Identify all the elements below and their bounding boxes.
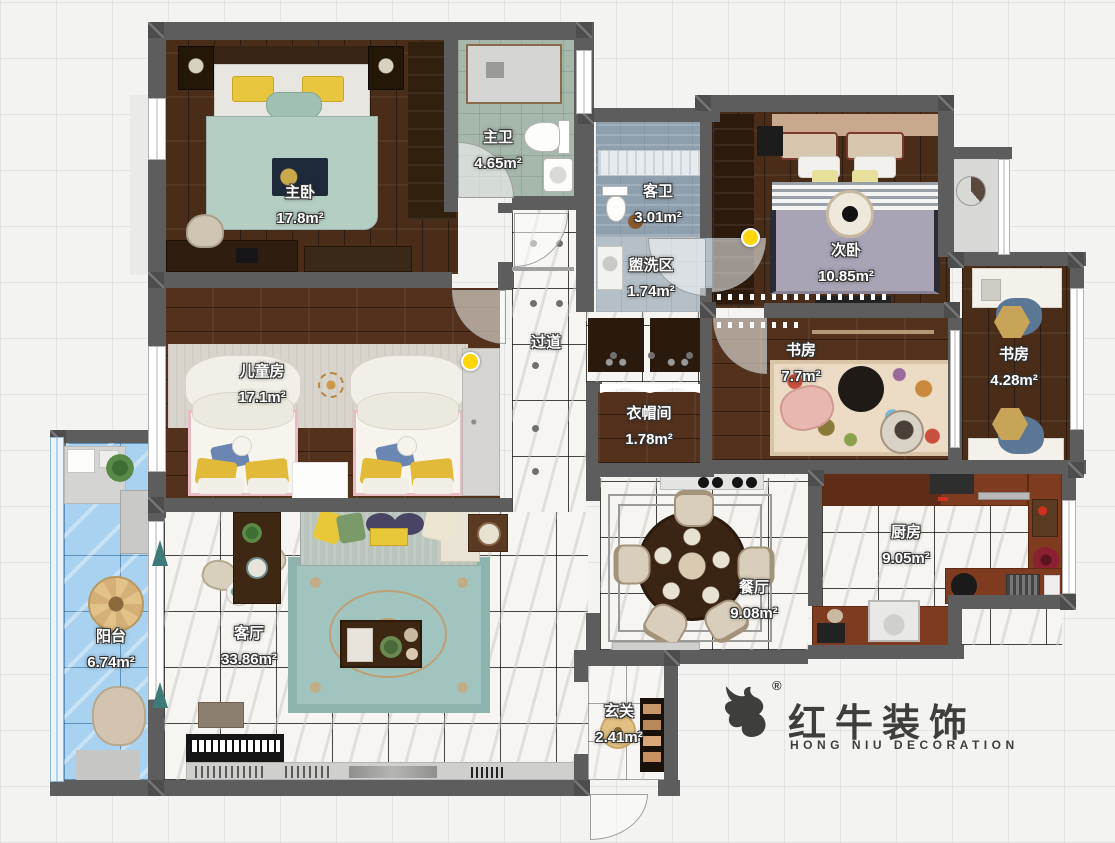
room-name: 主卫 xyxy=(474,130,522,145)
wall xyxy=(576,208,594,312)
wall xyxy=(948,595,1076,609)
window xyxy=(998,159,1010,255)
shoes xyxy=(643,704,661,714)
cushion-cream xyxy=(421,509,456,543)
spotlight xyxy=(686,352,693,359)
wall-joint xyxy=(664,650,680,666)
wall-joint xyxy=(700,302,716,318)
wall xyxy=(764,303,960,318)
wall xyxy=(808,474,822,606)
bunny-doll xyxy=(232,436,252,456)
room-name: 玄关 xyxy=(595,704,643,719)
speaker-grill xyxy=(285,766,329,778)
plate xyxy=(246,557,268,579)
kids-bed xyxy=(349,352,467,498)
monitor xyxy=(981,279,1001,301)
room-name: 主卧 xyxy=(276,185,324,200)
room-label-master-bath: 主卫 4.65m² xyxy=(474,130,522,171)
room-name: 次卧 xyxy=(818,243,874,258)
plate xyxy=(404,628,418,642)
wall xyxy=(444,38,458,196)
bead-curtain xyxy=(706,294,888,300)
bar-stool xyxy=(698,477,709,488)
room-name: 厨房 xyxy=(882,525,930,540)
wall xyxy=(50,780,582,796)
wall xyxy=(712,460,1086,474)
piano xyxy=(186,734,284,764)
room-area: 17.1m² xyxy=(238,390,286,405)
shoe-cabinet xyxy=(640,698,664,772)
bathtub xyxy=(598,150,710,176)
floor-mat xyxy=(292,462,348,500)
wall xyxy=(938,157,954,257)
desk-chair xyxy=(186,214,224,248)
pillow-white xyxy=(198,478,244,494)
spotlight xyxy=(532,362,539,369)
dining-chair xyxy=(674,490,714,527)
parasol-table xyxy=(88,576,144,632)
room-area: 4.28m² xyxy=(990,373,1038,388)
room-label-study-1: 书房 7.7m² xyxy=(781,343,820,384)
bolster-teal xyxy=(266,92,322,118)
door-entry xyxy=(590,794,648,840)
dresser xyxy=(304,246,412,272)
vent-strip xyxy=(978,492,1030,500)
coffee-table xyxy=(340,620,422,668)
room-name: 阳台 xyxy=(87,629,135,644)
room-name: 客卫 xyxy=(634,184,682,199)
toilet xyxy=(602,186,628,196)
wall xyxy=(664,650,808,664)
nightstand xyxy=(178,46,214,90)
desk xyxy=(166,240,298,272)
wall-joint xyxy=(944,302,960,318)
room-name: 儿童房 xyxy=(238,364,286,379)
wall xyxy=(498,203,512,213)
floor-plan-canvas: 主卧 17.8m² 主卫 4.65m² 客卫 3.01m² 盥洗区 1.74m²… xyxy=(0,0,1115,843)
wall-joint xyxy=(574,780,590,796)
cutting-board xyxy=(1032,499,1058,537)
flowers xyxy=(380,636,402,658)
ceiling-fan xyxy=(826,190,874,238)
room-area: 1.78m² xyxy=(625,432,673,447)
dark-appliance xyxy=(817,623,845,643)
bull-logo-svg xyxy=(722,684,774,746)
brand-watermark: ® 红牛装饰 HONG NIU DECORATION xyxy=(722,676,1032,762)
room-area: 7.7m² xyxy=(781,369,820,384)
room-label-kids-room: 儿童房 17.1m² xyxy=(238,364,286,405)
room-area: 10.85m² xyxy=(818,269,874,284)
room-name: 书房 xyxy=(990,347,1038,362)
toilet-bowl xyxy=(524,122,560,152)
room-label-guest-bath: 客卫 3.01m² xyxy=(634,184,682,225)
fan-center xyxy=(842,206,858,222)
laptop xyxy=(236,248,258,263)
plant xyxy=(242,523,262,543)
kitchen-sink xyxy=(868,600,920,642)
spotlight xyxy=(532,425,539,432)
chandelier xyxy=(318,372,344,398)
piano-bench xyxy=(198,702,244,728)
console-table xyxy=(233,512,281,604)
pillow-white xyxy=(248,478,288,494)
hall-cabinet xyxy=(650,318,706,372)
speaker-grill xyxy=(471,767,505,778)
room-label-second-bedroom: 次卧 10.85m² xyxy=(818,243,874,284)
wall xyxy=(948,252,1086,266)
wall xyxy=(695,95,953,112)
spotlight xyxy=(556,300,563,307)
hall-cabinet xyxy=(588,318,644,372)
deco-plate xyxy=(956,176,986,206)
shoes xyxy=(643,752,661,762)
room-area: 9.08m² xyxy=(730,606,778,621)
tray xyxy=(477,522,501,546)
wall xyxy=(586,477,600,501)
pillow-white xyxy=(413,478,453,494)
wall xyxy=(664,650,678,792)
wall-joint xyxy=(1060,594,1076,610)
room-area: 33.86m² xyxy=(221,652,277,667)
wall-joint xyxy=(148,780,164,796)
beanbag xyxy=(92,686,146,746)
washer xyxy=(67,449,95,473)
wall-joint xyxy=(938,95,954,111)
tray-white xyxy=(347,628,373,662)
hanging-rod xyxy=(812,330,934,334)
spotlight xyxy=(530,300,537,307)
spotlight xyxy=(648,352,655,359)
washing-machine xyxy=(597,246,623,290)
ac-platform[interactable] xyxy=(954,159,998,257)
room-label-dining-room: 餐厅 9.08m² xyxy=(730,580,778,621)
dining-chair xyxy=(614,545,651,585)
room-label-kitchen: 厨房 9.05m² xyxy=(882,525,930,566)
side-table xyxy=(468,514,508,552)
tv xyxy=(757,126,783,156)
round-chair xyxy=(838,366,884,412)
room-area: 3.01m² xyxy=(634,210,682,225)
wall xyxy=(498,262,512,290)
wall xyxy=(148,22,590,40)
bar-stool xyxy=(712,477,723,488)
wall xyxy=(148,498,512,512)
wall xyxy=(938,147,1012,159)
wall xyxy=(700,112,712,238)
room-label-study-2: 书房 4.28m² xyxy=(990,347,1038,388)
wall xyxy=(658,780,680,796)
wall-joint xyxy=(576,22,592,38)
bed-headboard xyxy=(212,46,372,66)
room-area: 9.05m² xyxy=(882,551,930,566)
wall xyxy=(50,430,164,443)
room-label-balcony: 阳台 6.74m² xyxy=(87,629,135,670)
speaker-grill xyxy=(195,766,267,778)
pillow-white xyxy=(363,478,409,494)
bunny-doll xyxy=(397,436,417,456)
balcony-window xyxy=(50,437,64,782)
cushion-gold xyxy=(370,528,408,546)
burner-mark xyxy=(938,497,948,501)
brand-subtitle: HONG NIU DECORATION xyxy=(790,738,1019,752)
wall xyxy=(148,272,452,288)
wall-joint xyxy=(808,470,824,486)
light-marker xyxy=(461,352,480,371)
wall-joint xyxy=(148,22,164,38)
dish xyxy=(1044,575,1060,595)
shower-tray xyxy=(466,44,562,104)
registered-mark: ® xyxy=(772,678,782,693)
bar-stool xyxy=(732,477,743,488)
spotlight xyxy=(610,352,617,359)
wall xyxy=(586,463,714,477)
tv-cabinet xyxy=(186,762,578,780)
shower-head xyxy=(486,62,504,78)
room-label-wash-area: 盥洗区 1.74m² xyxy=(627,258,675,299)
plate xyxy=(827,609,843,623)
toilet-bowl xyxy=(606,196,626,222)
room-area: 2.41m² xyxy=(595,730,643,745)
shoes xyxy=(643,720,661,730)
room-label-living-room: 客厅 33.86m² xyxy=(221,626,277,667)
window xyxy=(576,50,592,114)
wall-joint xyxy=(148,497,164,513)
room-label-entry: 玄关 2.41m² xyxy=(595,704,643,745)
threshold xyxy=(512,267,574,271)
wall xyxy=(574,666,588,682)
room-label-cloakroom: 衣帽间 1.78m² xyxy=(625,406,673,447)
canopy-roll xyxy=(357,392,459,430)
room-area: 1.74m² xyxy=(627,284,675,299)
room-area: 4.65m² xyxy=(474,156,522,171)
wall-joint xyxy=(948,252,964,268)
room-name: 衣帽间 xyxy=(625,406,673,421)
window xyxy=(148,346,166,472)
wall xyxy=(148,158,166,348)
room-area: 17.8m² xyxy=(276,211,324,226)
shoes xyxy=(643,736,661,746)
sink xyxy=(543,158,573,192)
wall-joint xyxy=(1068,462,1084,478)
wall-joint xyxy=(1068,252,1084,268)
tv xyxy=(349,766,437,778)
bull-logo-icon xyxy=(722,684,774,746)
plant xyxy=(106,454,134,482)
room-name: 餐厅 xyxy=(730,580,778,595)
spotlight xyxy=(532,468,539,475)
room-area: 6.74m² xyxy=(87,655,135,670)
wall xyxy=(444,196,458,212)
light-marker xyxy=(741,228,760,247)
hamster-wheel xyxy=(880,410,924,454)
window xyxy=(950,330,960,448)
plate xyxy=(406,648,418,660)
window xyxy=(148,98,166,160)
wall-joint xyxy=(148,272,164,288)
wall-joint xyxy=(695,95,711,111)
room-name: 客厅 xyxy=(221,626,277,641)
wall xyxy=(148,698,164,784)
piano-keys xyxy=(190,740,280,752)
room-name: 盥洗区 xyxy=(627,258,675,273)
window xyxy=(1070,288,1084,430)
cushion-green xyxy=(336,512,366,544)
window xyxy=(1062,500,1076,594)
room-name: 过道 xyxy=(531,335,561,350)
room-name: 书房 xyxy=(781,343,820,358)
room-label-master-bedroom: 主卧 17.8m² xyxy=(276,185,324,226)
nightstand xyxy=(368,46,404,90)
room-label-hallway: 过道 xyxy=(531,335,561,350)
outer-sill xyxy=(130,95,148,275)
bar-stool xyxy=(746,477,757,488)
wall xyxy=(574,650,666,666)
wall xyxy=(808,645,964,659)
